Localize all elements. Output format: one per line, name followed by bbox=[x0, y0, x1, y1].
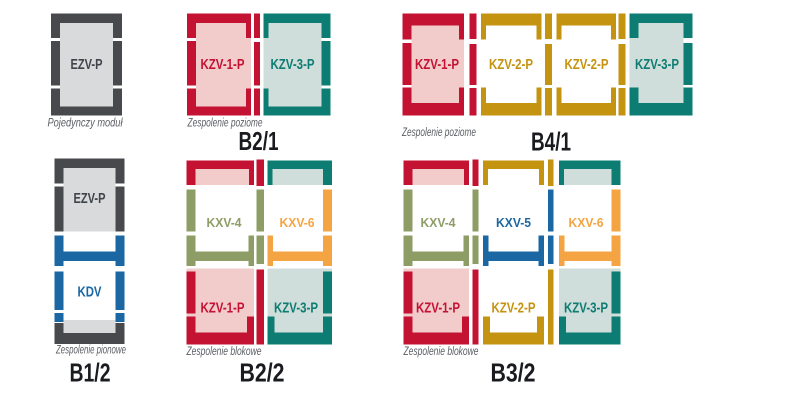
svg-text:Pojedynczy moduł: Pojedynczy moduł bbox=[48, 116, 123, 130]
svg-text:Zespolenie blokowe: Zespolenie blokowe bbox=[403, 344, 479, 358]
svg-text:KZV-3-P: KZV-3-P bbox=[635, 56, 679, 73]
svg-text:B2/1: B2/1 bbox=[239, 126, 279, 156]
svg-text:KZV-1-P: KZV-1-P bbox=[416, 300, 460, 317]
svg-text:KXV-4: KXV-4 bbox=[421, 215, 457, 230]
svg-text:B1/2: B1/2 bbox=[70, 358, 111, 388]
svg-text:EZV-P: EZV-P bbox=[71, 56, 103, 73]
svg-text:B4/1: B4/1 bbox=[531, 127, 571, 157]
svg-text:Zespolenie pionowe: Zespolenie pionowe bbox=[55, 343, 126, 357]
svg-text:KZV-1-P: KZV-1-P bbox=[201, 56, 245, 73]
svg-text:KZV-3-P: KZV-3-P bbox=[271, 56, 315, 73]
svg-text:KXV-6: KXV-6 bbox=[280, 215, 315, 230]
svg-text:Zespolenie poziome: Zespolenie poziome bbox=[401, 125, 476, 139]
svg-text:KXV-4: KXV-4 bbox=[207, 215, 243, 230]
svg-text:KXV-6: KXV-6 bbox=[569, 215, 604, 230]
svg-text:KZV-3-P: KZV-3-P bbox=[274, 300, 318, 317]
svg-text:EZV-P: EZV-P bbox=[74, 190, 106, 207]
svg-text:KZV-3-P: KZV-3-P bbox=[564, 300, 608, 317]
svg-text:Zespolenie blokowe: Zespolenie blokowe bbox=[186, 344, 262, 358]
svg-text:KZV-1-P: KZV-1-P bbox=[415, 56, 459, 73]
svg-text:KDV: KDV bbox=[78, 284, 102, 301]
svg-text:B3/2: B3/2 bbox=[491, 358, 536, 388]
svg-text:KZV-2-P: KZV-2-P bbox=[565, 56, 609, 73]
svg-text:KZV-2-P: KZV-2-P bbox=[492, 300, 536, 317]
svg-text:KXV-5: KXV-5 bbox=[496, 215, 531, 230]
svg-text:B2/2: B2/2 bbox=[240, 358, 285, 388]
svg-text:KZV-2-P: KZV-2-P bbox=[489, 56, 533, 73]
svg-text:KZV-1-P: KZV-1-P bbox=[201, 300, 245, 317]
